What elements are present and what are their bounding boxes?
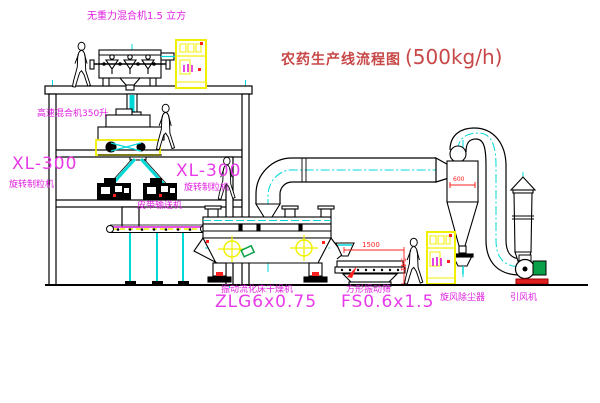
control-cabinet-top <box>176 40 206 88</box>
label-sieve-model: FS0.6x1.5 <box>341 294 434 311</box>
belt-conveyor <box>107 225 216 284</box>
worker-roof <box>72 42 90 87</box>
gravity-free-mixer <box>90 50 182 90</box>
label-dryer-model: ZLG6x0.75 <box>215 294 317 311</box>
dimension-cyclone-diameter: 600 <box>453 177 464 183</box>
label-granulator-center-name: 旋转制粒机 <box>184 184 229 193</box>
control-cabinet-ground <box>427 232 455 284</box>
label-granulator-left-model: XL-300 <box>12 156 77 173</box>
granulator-units <box>97 178 177 200</box>
label-cyclone: 旋风除尘器 <box>440 294 485 303</box>
label-fan: 引风机 <box>510 294 537 303</box>
process-flow-drawing: 农药生产线流程图 (500kg/h) 无重力混合机1.5 立方 高速混合机350… <box>0 0 600 403</box>
title-capacity: (500kg/h) <box>405 45 502 69</box>
dimension-sieve-length: 1500 <box>362 242 380 249</box>
drawing-title: 农药生产线流程图 (500kg/h) <box>281 45 502 69</box>
dimension-sieve-height: 541 <box>399 258 406 271</box>
label-granulator-left-name: 旋转制粒机 <box>9 181 54 190</box>
label-granulator-center-model: XL-300 <box>176 163 241 180</box>
vibrating-sieve <box>335 243 407 286</box>
high-speed-mixer <box>96 94 164 155</box>
worker-ground <box>405 238 423 284</box>
exhaust-duct-to-cyclone <box>256 158 452 204</box>
fan-motor <box>533 261 546 275</box>
title-chinese: 农药生产线流程图 <box>281 49 401 69</box>
exhaust-stack <box>511 177 535 264</box>
fan-base <box>516 279 548 284</box>
label-high-speed-mixer: 高速混合机350升 <box>37 110 108 119</box>
induced-draft-fan <box>516 255 549 284</box>
label-gravity-mixer: 无重力混合机1.5 立方 <box>87 12 186 22</box>
label-belt-conveyor: 皮带输送机 <box>137 202 182 211</box>
